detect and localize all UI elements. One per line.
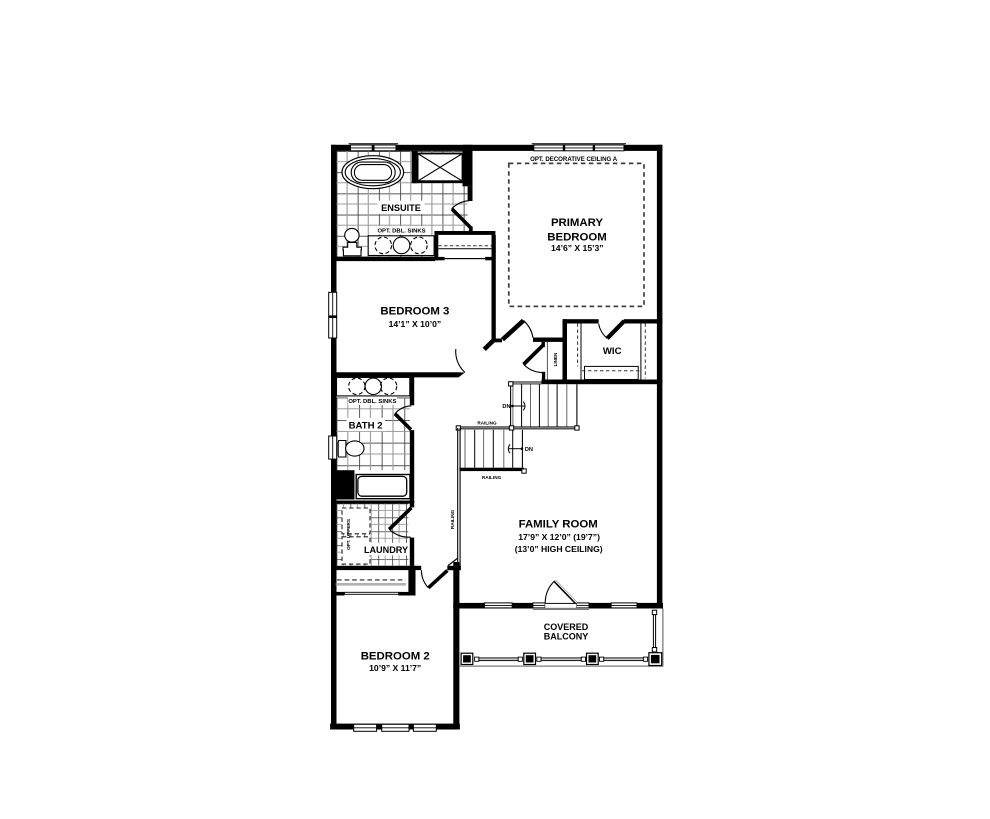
svg-text:FAMILY ROOM: FAMILY ROOM (519, 519, 598, 531)
svg-text:OPT. UPPERS: OPT. UPPERS (346, 519, 351, 550)
svg-text:10’9” X 11’7”: 10’9” X 11’7” (369, 663, 421, 673)
svg-text:COVERED: COVERED (544, 622, 589, 632)
svg-text:(13’0” HIGH CEILING): (13’0” HIGH CEILING) (515, 544, 603, 554)
svg-text:WIC: WIC (603, 346, 622, 357)
svg-text:OPT. DBL. SINKS: OPT. DBL. SINKS (348, 399, 396, 405)
svg-text:BEDROOM 3: BEDROOM 3 (380, 306, 449, 318)
svg-text:PRIMARY: PRIMARY (551, 217, 604, 229)
svg-text:OPT. DECORATIVE CEILING A: OPT. DECORATIVE CEILING A (530, 156, 618, 163)
svg-text:RAILING: RAILING (450, 509, 455, 529)
svg-text:ENSUITE: ENSUITE (381, 203, 421, 213)
svg-text:14’1” X 10’0”: 14’1” X 10’0” (389, 319, 442, 329)
svg-text:LAUNDRY: LAUNDRY (364, 545, 408, 555)
svg-text:OPT. DBL. SINKS: OPT. DBL. SINKS (377, 229, 425, 235)
svg-text:DN: DN (502, 404, 510, 410)
svg-text:14’6” X 15’3”: 14’6” X 15’3” (551, 243, 604, 253)
svg-text:DN: DN (525, 447, 533, 453)
svg-text:RAILING: RAILING (477, 420, 497, 425)
svg-text:RAILING: RAILING (482, 475, 502, 480)
svg-text:17’9” X 12’0” (19’7”): 17’9” X 12’0” (19’7”) (518, 532, 600, 542)
svg-text:LINEN: LINEN (553, 352, 558, 366)
svg-text:BATH 2: BATH 2 (349, 420, 383, 431)
svg-text:BEDROOM: BEDROOM (547, 231, 606, 243)
svg-text:BEDROOM 2: BEDROOM 2 (361, 651, 430, 663)
svg-text:BALCONY: BALCONY (544, 632, 589, 642)
